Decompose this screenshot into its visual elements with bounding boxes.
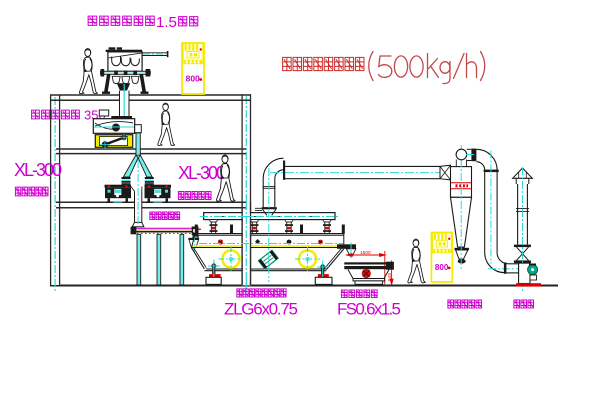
svg-text:ZLG6x0.75: ZLG6x0.75 [224,300,298,319]
svg-text:XL-300: XL-300 [178,163,226,183]
svg-text:1500: 1500 [360,250,371,256]
svg-text:FS0.6x1.5: FS0.6x1.5 [337,300,401,319]
svg-text:1.5: 1.5 [156,14,177,31]
svg-text:545: 545 [387,273,393,281]
svg-text:XL-300: XL-300 [14,160,62,180]
